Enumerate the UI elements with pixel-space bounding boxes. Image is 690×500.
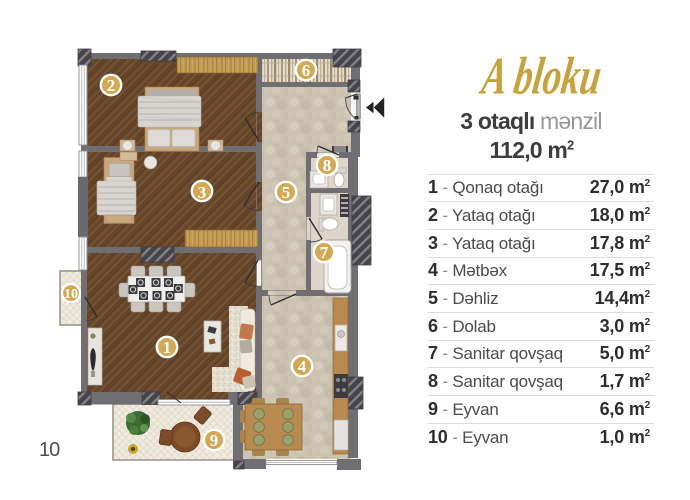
- svg-text:5: 5: [282, 183, 291, 202]
- svg-text:7: 7: [320, 243, 329, 262]
- svg-text:10: 10: [64, 287, 78, 302]
- svg-text:1: 1: [163, 338, 172, 357]
- svg-text:8: 8: [323, 156, 332, 175]
- svg-text:3: 3: [198, 183, 207, 202]
- svg-text:4: 4: [298, 357, 307, 376]
- svg-text:9: 9: [210, 431, 219, 450]
- svg-text:2: 2: [107, 76, 116, 95]
- svg-text:6: 6: [302, 61, 311, 80]
